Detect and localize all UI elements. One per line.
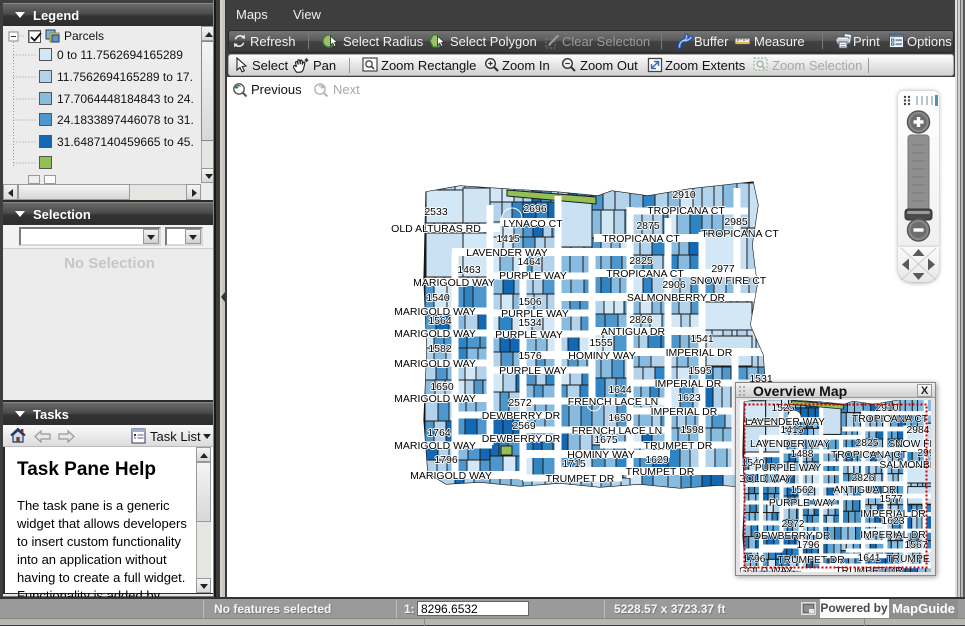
svg-text:1488: 1488 <box>791 449 814 460</box>
svg-text:1629: 1629 <box>645 454 669 466</box>
svg-text:1595: 1595 <box>688 365 712 377</box>
svg-text:1506: 1506 <box>518 296 542 308</box>
svg-text:2985: 2985 <box>724 216 748 228</box>
svg-text:TROPICANA CT: TROPICANA CT <box>852 414 929 425</box>
svg-text:GOLD WAY: GOLD WAY <box>740 474 792 485</box>
svg-text:MARIGOLD WAY: MARIGOLD WAY <box>394 328 476 340</box>
svg-text:FRENCH LACE LN: FRENCH LACE LN <box>568 396 658 408</box>
svg-text:2825: 2825 <box>629 255 653 267</box>
svg-text:1675: 1675 <box>594 434 618 446</box>
svg-text:1562: 1562 <box>791 485 814 496</box>
svg-text:2977: 2977 <box>711 263 735 275</box>
svg-text:PURPLE WAY: PURPLE WAY <box>495 329 563 341</box>
svg-text:LYNACO CT: LYNACO CT <box>503 218 563 230</box>
svg-text:2826: 2826 <box>852 473 875 484</box>
svg-text:IMPERIAL DR: IMPERIAL DR <box>651 406 718 418</box>
svg-text:1764: 1764 <box>427 427 451 439</box>
svg-text:1715: 1715 <box>562 458 586 470</box>
svg-text:1564: 1564 <box>428 315 452 327</box>
svg-text:PURPLE WAY: PURPLE WAY <box>769 498 836 509</box>
svg-text:OLD ALTURAS RD: OLD ALTURAS RD <box>391 223 481 235</box>
svg-text:IMPERIAL DR: IMPERIAL DR <box>666 347 733 359</box>
svg-text:1641: 1641 <box>858 553 881 564</box>
svg-text:PURPLE WAY: PURPLE WAY <box>755 463 822 474</box>
svg-text:MARIGOLD WAY: MARIGOLD WAY <box>394 358 476 370</box>
svg-text:TROPICANA CT: TROPICANA CT <box>602 233 680 245</box>
svg-text:TRUMPE: TRUMPE <box>886 554 930 565</box>
svg-text:PURPLE WAY: PURPLE WAY <box>499 365 567 377</box>
svg-text:TROPICANA CT: TROPICANA CT <box>647 205 725 217</box>
svg-text:2696: 2696 <box>523 203 547 215</box>
svg-text:2906: 2906 <box>662 279 686 291</box>
svg-text:1796: 1796 <box>797 540 820 551</box>
svg-text:1598: 1598 <box>680 424 704 436</box>
svg-text:SALMONBE: SALMONBE <box>879 460 931 471</box>
svg-text:TRUMPET DR: TRUMPET DR <box>777 555 844 566</box>
svg-text:MARIGOLD WAY: MARIGOLD WAY <box>394 393 476 405</box>
svg-text:1534: 1534 <box>518 317 542 329</box>
svg-text:2910: 2910 <box>672 189 696 201</box>
svg-text:TROPICANA CT: TROPICANA CT <box>701 228 779 240</box>
svg-text:2572: 2572 <box>782 519 805 530</box>
svg-text:SNOW FIRE CT: SNOW FIRE CT <box>690 275 767 287</box>
svg-text:1577: 1577 <box>880 494 903 505</box>
svg-text:MARIGOLD WAY: MARIGOLD WAY <box>410 470 492 482</box>
svg-text:1463: 1463 <box>457 264 481 276</box>
svg-text:1567: 1567 <box>905 540 928 551</box>
svg-text:MARIGOLD WAY: MARIGOLD WAY <box>394 440 476 452</box>
svg-text:1415: 1415 <box>496 233 520 245</box>
svg-text:1582: 1582 <box>428 343 452 355</box>
svg-text:1464: 1464 <box>517 256 541 268</box>
svg-text:TRUMPET DR: TRUMPET DR <box>644 440 713 452</box>
svg-text:PURPLE WAY: PURPLE WAY <box>499 270 567 282</box>
svg-text:1576: 1576 <box>518 350 542 362</box>
svg-text:TRUMPET DR: TRUMPET DR <box>546 473 615 485</box>
svg-text:1555: 1555 <box>589 337 613 349</box>
svg-text:TRUMPET DR: TRUMPET DR <box>835 566 902 572</box>
svg-text:IMPERIAL DR: IMPERIAL DR <box>655 378 722 390</box>
svg-text:DEWBERRY DR: DEWBERRY DR <box>482 433 561 445</box>
svg-text:1644: 1644 <box>608 384 632 396</box>
svg-text:1623: 1623 <box>882 516 905 527</box>
svg-text:1623: 1623 <box>677 392 701 404</box>
svg-text:2875: 2875 <box>636 220 660 232</box>
svg-text:299: 299 <box>917 448 931 459</box>
svg-text:SALMONBERRY DR: SALMONBERRY DR <box>627 292 726 304</box>
svg-text:2569: 2569 <box>512 420 536 432</box>
svg-text:1415: 1415 <box>781 425 804 436</box>
svg-text:HOMINY WAY: HOMINY WAY <box>568 350 635 362</box>
svg-text:MARIGOLD WAY: MARIGOLD WAY <box>413 277 495 289</box>
svg-text:1540: 1540 <box>426 292 450 304</box>
svg-text:1650: 1650 <box>608 412 632 424</box>
svg-text:2910: 2910 <box>876 403 899 414</box>
svg-text:2572: 2572 <box>508 397 532 409</box>
svg-text:2825: 2825 <box>856 438 879 449</box>
svg-text:1650: 1650 <box>430 381 454 393</box>
svg-text:1525: 1525 <box>772 403 795 414</box>
svg-text:2533: 2533 <box>424 206 448 218</box>
svg-text:1796: 1796 <box>434 454 458 466</box>
svg-text:1796: 1796 <box>743 554 766 565</box>
svg-text:2826: 2826 <box>629 314 653 326</box>
svg-text:TRUMPET DR: TRUMPET DR <box>626 466 695 478</box>
svg-text:1541: 1541 <box>690 333 714 345</box>
